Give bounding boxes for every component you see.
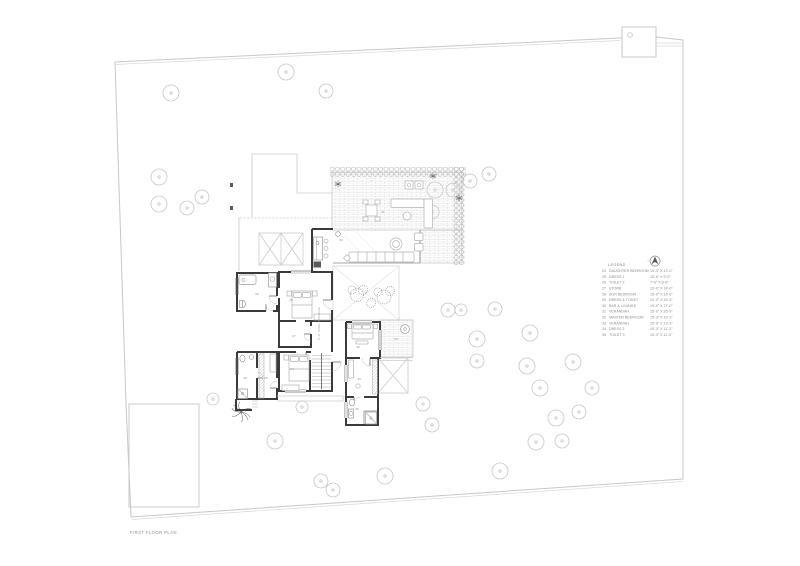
pergola-outline <box>378 358 408 393</box>
legend-item-name: DRESS 2 <box>609 275 624 279</box>
legend-rows: 24DAUGHTER BEDROOM15'-3" X 13'-0"25DRESS… <box>602 269 673 337</box>
legend-item-name: VERANDAH <box>609 310 629 314</box>
tree-center-dot <box>476 360 478 362</box>
tree-center-dot <box>158 203 160 205</box>
room-number-label: 25 <box>264 376 268 380</box>
tree-center-dot <box>572 361 574 363</box>
room-number-label: 33 <box>394 337 398 341</box>
tree-icon <box>522 325 538 341</box>
legend-item-no: 31 <box>602 310 606 314</box>
plant-border-top <box>330 167 466 177</box>
tree-center-dot <box>447 309 449 311</box>
tree-center-dot <box>488 173 490 175</box>
room-number-label: 35 <box>355 407 359 411</box>
tree-icon <box>319 84 333 98</box>
tree-icon <box>151 169 167 185</box>
tree-icon <box>585 381 599 395</box>
palm-tree-icon <box>232 402 251 422</box>
tree-center-dot <box>529 332 531 334</box>
tree-icon <box>296 401 308 413</box>
legend-item-no: 26 <box>602 281 606 285</box>
tree-center-dot <box>212 398 214 400</box>
tree-icon <box>151 196 167 212</box>
legend-item-name: MASTER BEDROOM <box>609 316 644 320</box>
legend-item-name: TOILET 3 <box>609 333 624 337</box>
staircase <box>312 353 331 389</box>
tree-center-dot <box>476 338 478 340</box>
legend-item-no: 35 <box>602 333 606 337</box>
bar-lounge <box>314 230 424 268</box>
tree-center-dot <box>469 180 471 182</box>
room-number-label: 27 <box>292 334 296 338</box>
tree-icon <box>528 434 544 450</box>
tree-center-dot <box>591 387 593 389</box>
legend-heading: LEGEND <box>608 263 626 267</box>
room-number-label: 24 <box>290 367 294 371</box>
tree-center-dot <box>535 441 537 443</box>
tree-icon <box>207 393 219 405</box>
tree-center-dot <box>494 308 496 310</box>
tree-center-dot <box>526 365 528 367</box>
legend-item-name: STORE <box>609 286 622 290</box>
legend-item-no: 27 <box>602 286 606 290</box>
tree-center-dot <box>285 71 287 73</box>
gate-structure <box>622 27 683 57</box>
legend-item-name: TOILET 2 <box>609 281 624 285</box>
tree-icon <box>555 434 569 448</box>
legend-item-dims: 15'-3" X 11'-3" <box>650 327 673 331</box>
courtyard <box>333 266 399 320</box>
tree-icon <box>195 190 209 204</box>
tree-icon <box>455 304 467 316</box>
tree-icon <box>416 397 430 411</box>
room-number-label: 30 <box>339 238 343 242</box>
tree-icon <box>267 433 283 449</box>
legend-item-name: DAUGHTER BEDROOM <box>609 269 649 273</box>
tree-center-dot <box>431 424 433 426</box>
tree-center-dot <box>499 470 501 472</box>
bar-counter <box>314 237 329 268</box>
tree-center-dot <box>158 176 160 178</box>
legend-item-dims: 10'-6" X 9'-0" <box>650 275 671 279</box>
tree-center-dot <box>325 90 327 92</box>
tree-icon <box>519 358 535 374</box>
tree-icon <box>377 468 393 484</box>
tree-icon <box>492 463 508 479</box>
tree-icon <box>163 85 179 101</box>
tree-icon <box>572 405 586 419</box>
legend-item-dims: 15'-0" X 16'-6" <box>650 292 673 296</box>
passage-label: 8'-0" WIDE PASSAGE <box>317 307 321 340</box>
tree-center-dot <box>186 207 188 209</box>
legend-item-dims: 7'-6" X 8'-6" <box>650 281 669 285</box>
tree-icon <box>469 331 485 347</box>
legend-item-no: 25 <box>602 275 606 279</box>
terrace-verandah <box>330 167 466 265</box>
tree-center-dot <box>170 92 172 94</box>
north-arrow-icon <box>647 256 663 266</box>
tree-center-dot <box>561 440 563 442</box>
legend-item-dims: 15'-3" X 19'-3" <box>650 316 673 320</box>
legend-item-dims: 15'-9" X 13'-3" <box>650 321 673 325</box>
tree-icon <box>482 167 496 181</box>
legend-item-name: SON BEDROOM <box>609 292 636 296</box>
legend: LEGEND 24DAUGHTER BEDROOM15'-3" X 13'-0"… <box>602 256 673 337</box>
tree-icon <box>470 354 484 368</box>
tree-center-dot <box>555 417 557 419</box>
legend-item-dims: 19'-0" X 27'-0" <box>650 304 673 308</box>
tree-center-dot <box>422 403 424 405</box>
drawing-title: FIRST FLOOR PLAN <box>130 530 177 535</box>
tree-center-dot <box>578 411 580 413</box>
tree-icon <box>425 418 439 432</box>
tree-icon <box>488 302 502 316</box>
legend-item-no: 33 <box>602 321 606 325</box>
legend-item-dims: 15'-0" X 26'-9" <box>650 310 673 314</box>
tree-icon <box>314 474 328 488</box>
legend-item-dims: 10'-3" X 11'-0" <box>650 333 673 337</box>
tree-icon <box>532 380 548 396</box>
room-number-label: 32 <box>356 345 360 349</box>
legend-item-name: DRESS 3 <box>609 327 624 331</box>
tree-center-dot <box>301 406 303 408</box>
site-annex-plot <box>129 404 199 507</box>
legend-item-dims: 15'-3" X 13'-0" <box>650 269 673 273</box>
tree-center-dot <box>384 475 386 477</box>
tree-center-dot <box>460 309 462 311</box>
tree-center-dot <box>539 387 541 389</box>
tree-icon <box>548 410 564 426</box>
legend-item-no: 28 <box>602 292 606 296</box>
lounge-furniture <box>336 232 423 262</box>
room-number-label: 26 <box>243 376 247 380</box>
legend-item-name: BAR & LOUNGE <box>609 304 637 308</box>
legend-item-name: VERANDAH <box>609 321 629 325</box>
legend-item-name: DRESS & TOILET <box>609 298 639 302</box>
room-number-label: 29 <box>255 292 259 296</box>
void-panel <box>259 233 303 265</box>
room-number-label: 28 <box>289 298 293 302</box>
legend-item-no: 34 <box>602 327 606 331</box>
tree-center-dot <box>201 196 203 198</box>
tree-center-dot <box>274 440 276 442</box>
legend-item-no: 30 <box>602 304 606 308</box>
tree-center-dot <box>320 480 322 482</box>
legend-item-dims: 13'-2" X 16'-9" <box>650 298 673 302</box>
room-number-label: 31 <box>381 210 385 214</box>
tree-icon <box>565 354 581 370</box>
tree-center-dot <box>332 489 334 491</box>
trees-group <box>151 64 599 497</box>
doors <box>257 296 370 404</box>
tree-icon <box>441 303 455 317</box>
legend-item-no: 32 <box>602 316 606 320</box>
legend-item-no: 29 <box>602 298 606 302</box>
floor-plan-drawing: 292827242625303132333435 8'-0" WIDE PASS… <box>0 0 800 566</box>
legend-item-dims: 10'-0" X 14'-0" <box>650 286 673 290</box>
tree-icon <box>326 483 340 497</box>
legend-item-no: 24 <box>602 269 606 273</box>
tree-icon <box>180 201 194 215</box>
plant-border-right <box>453 167 465 265</box>
tree-icon <box>278 64 294 80</box>
room-number-label: 34 <box>357 377 361 381</box>
